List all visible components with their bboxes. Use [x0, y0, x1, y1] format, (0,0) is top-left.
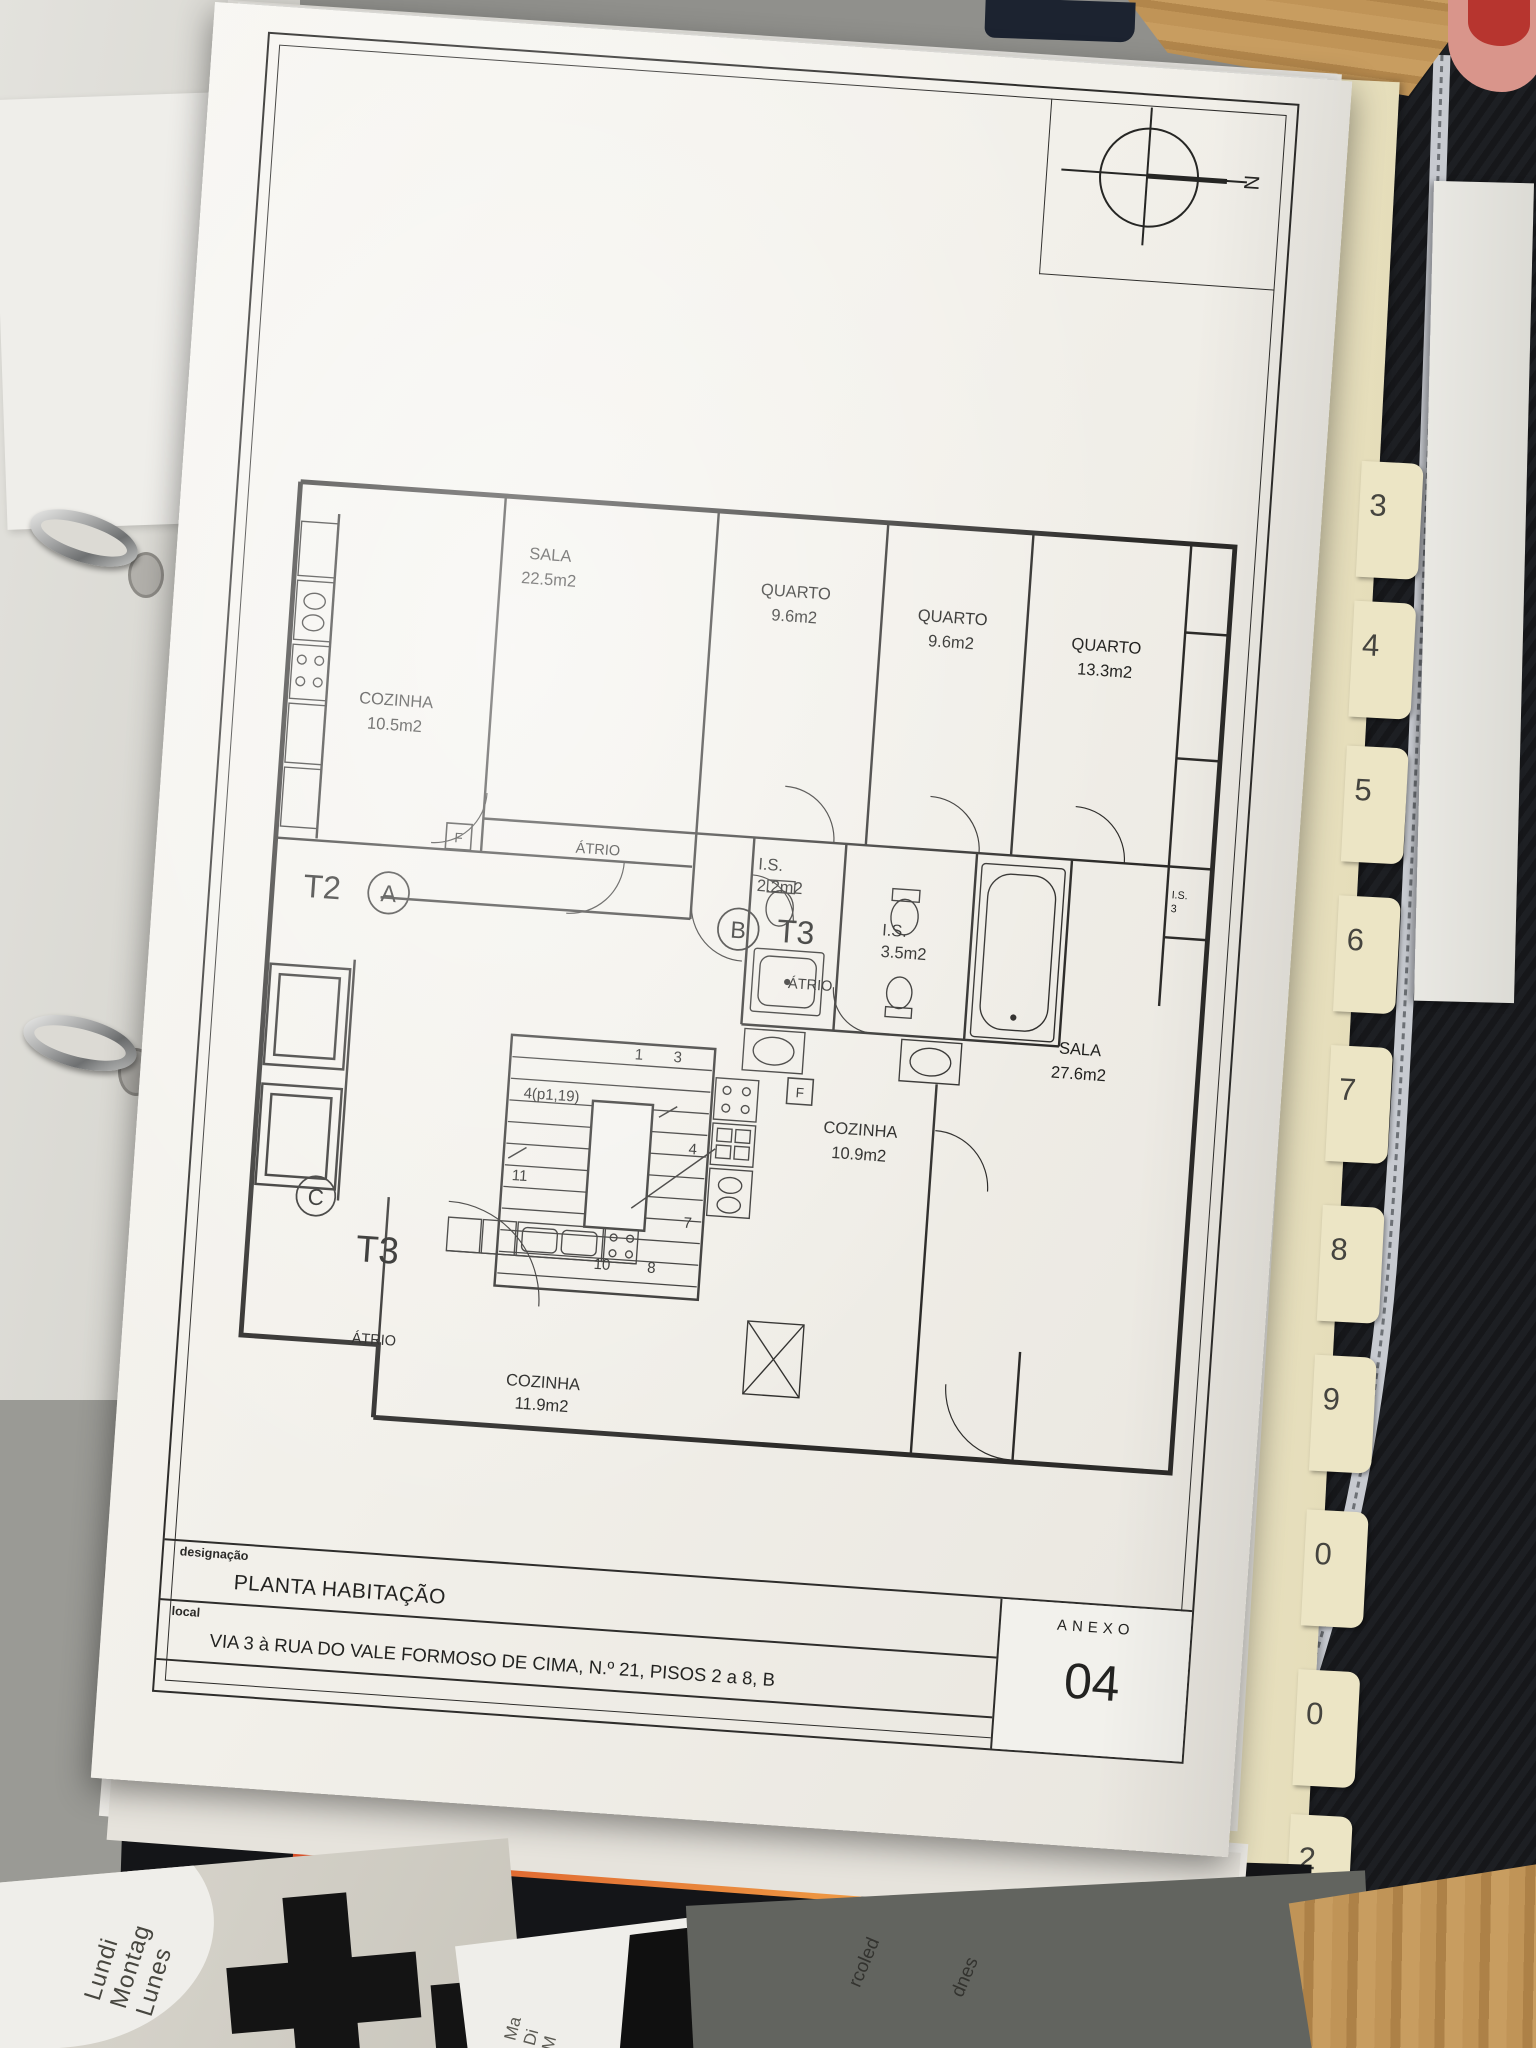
stair-mark: 8 — [647, 1259, 657, 1277]
room-label-quarto1-name: QUARTO — [760, 580, 831, 604]
unit-code-t3b: T3 — [776, 913, 816, 952]
room-label-cozinha2-area: 10.9m2 — [831, 1143, 887, 1166]
room-label-sala2-area: 27.6m2 — [1050, 1062, 1106, 1085]
room-label-quarto3-area: 13.3m2 — [1077, 659, 1133, 682]
drawing-title: PLANTA HABITAÇÃO — [233, 1571, 447, 1610]
tab-label: 7 — [1338, 1072, 1357, 1109]
elevator-shafts — [255, 964, 350, 1190]
unit-letter-a: A — [380, 880, 398, 907]
index-tab-9[interactable]: 9 — [1309, 1355, 1377, 1474]
outer-walls — [236, 482, 1235, 1473]
stair-mark: 1 — [634, 1046, 644, 1064]
dark-object-top — [984, 0, 1135, 43]
photo-scene: 3 4 5 6 7 8 9 0 0 2 N — [0, 0, 1536, 2048]
room-label-cozinha3-area: 11.9m2 — [514, 1393, 569, 1416]
room-label-quarto2-name: QUARTO — [917, 606, 988, 630]
kitchen-fixtures-center — [707, 1078, 759, 1219]
tab-label: 0 — [1314, 1536, 1333, 1573]
floor-plan-sheet[interactable]: N — [91, 2, 1352, 1857]
room-label-quarto2-area: 9.6m2 — [927, 631, 974, 653]
unit-code-t3c: T3 — [355, 1227, 401, 1272]
index-tab-5[interactable]: 5 — [1341, 745, 1409, 864]
tab-label: 5 — [1354, 772, 1373, 809]
floor-plan-drawing: F F SALA 22.5m2 QUARTO 9.6m2 QUARTO 9.6m… — [195, 450, 1253, 1532]
index-tab-11[interactable]: 0 — [1292, 1669, 1360, 1788]
cover-cross-shape — [226, 1952, 421, 2034]
unit-code-t2: T2 — [302, 868, 342, 907]
room-label-sala1-name: SALA — [529, 544, 573, 566]
room-label-is3-area: 3 — [1170, 903, 1177, 915]
compass-box: N — [1039, 99, 1287, 291]
index-tab-10[interactable]: 0 — [1301, 1509, 1369, 1628]
kitchen-fixtures-bottom — [438, 1217, 810, 1398]
index-tab-7[interactable]: 7 — [1325, 1045, 1393, 1164]
interior-walls — [236, 482, 1235, 1473]
hall-label-a: ÁTRIO — [575, 840, 621, 860]
tab-label: 8 — [1330, 1231, 1349, 1268]
designacao-label: designação — [179, 1544, 249, 1563]
room-label-sala1-area: 22.5m2 — [521, 568, 577, 591]
stair-mark: 4 — [688, 1141, 698, 1159]
index-tab-3[interactable]: 3 — [1356, 461, 1424, 580]
room-label-cozinha2-name: COZINHA — [823, 1118, 899, 1142]
anexo-label: ANEXO — [1000, 1613, 1191, 1643]
stair-mark: 11 — [511, 1167, 528, 1185]
tab-label: 3 — [1369, 487, 1388, 524]
tab-label: 0 — [1305, 1696, 1324, 1733]
room-label-is2-name: I.S. — [882, 920, 908, 941]
site-address: VIA 3 à RUA DO VALE FORMOSO DE CIMA, N.º… — [209, 1630, 776, 1691]
tab-label: 4 — [1361, 627, 1380, 664]
room-label-is3-name: I.S. — [1171, 889, 1188, 902]
north-letter: N — [1238, 174, 1263, 191]
room-label-is1-area: 2.2m2 — [756, 876, 803, 898]
room-label-is1-name: I.S. — [758, 854, 784, 875]
tab-label: 9 — [1322, 1381, 1341, 1418]
index-tab-6[interactable]: 6 — [1333, 895, 1401, 1014]
stair-mark: 4(p1,19) — [523, 1085, 580, 1106]
room-label-cozinha1-area: 10.5m2 — [366, 713, 422, 736]
unit-letter-c: C — [307, 1184, 325, 1210]
anexo-box: ANEXO 04 — [990, 1599, 1192, 1762]
local-label: local — [171, 1604, 200, 1620]
drawing-frame: N — [152, 32, 1300, 1764]
room-label-quarto3-name: QUARTO — [1071, 634, 1142, 658]
fragment-mercoledi: rcoled — [845, 1935, 885, 1991]
index-tab-8[interactable]: 8 — [1317, 1205, 1385, 1324]
appliance-mark: F — [795, 1085, 804, 1101]
room-label-sala2-name: SALA — [1058, 1038, 1102, 1060]
fragment-dnes: dnes — [947, 1954, 983, 2001]
hall-label-c: ÁTRIO — [351, 1330, 397, 1350]
stair-mark: 3 — [673, 1049, 683, 1067]
folded-paper-right — [1414, 181, 1534, 1003]
tab-label: 6 — [1346, 922, 1365, 959]
index-tab-4[interactable]: 4 — [1348, 601, 1416, 720]
weekday-fragments: Ma Di M — [500, 2015, 563, 2048]
stair-mark: 10 — [593, 1256, 611, 1274]
room-label-cozinha1-name: COZINHA — [359, 688, 435, 712]
unit-letter-b: B — [730, 916, 747, 943]
room-label-cozinha3-name: COZINHA — [506, 1370, 582, 1394]
anexo-number: 04 — [995, 1647, 1189, 1718]
room-label-is2-area: 3.5m2 — [880, 942, 927, 964]
room-label-quarto1-area: 9.6m2 — [771, 605, 818, 627]
hall-label-b: ÁTRIO — [787, 975, 833, 995]
unit-label-t3b: B T3 ÁTRIO — [714, 907, 838, 995]
appliance-mark: F — [454, 830, 463, 846]
stair-mark: 7 — [683, 1215, 693, 1233]
fingernail — [1468, 0, 1530, 46]
